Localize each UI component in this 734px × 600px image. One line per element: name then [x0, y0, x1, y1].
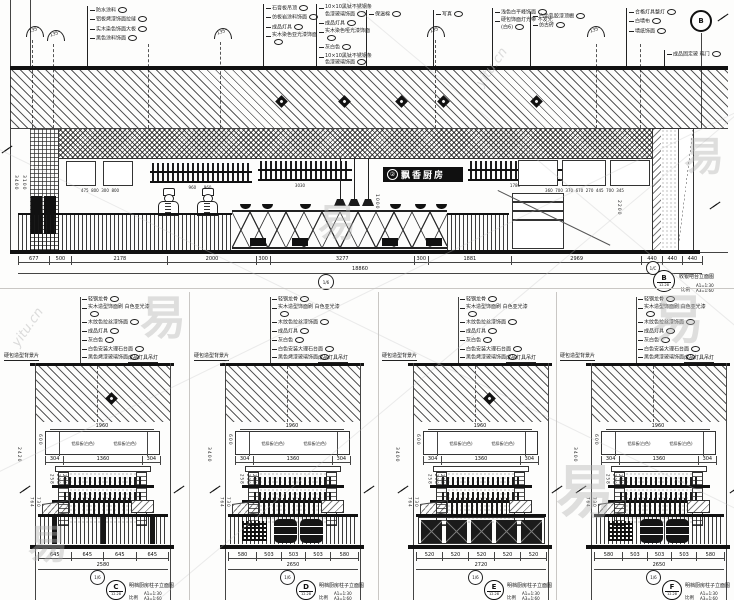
annotation-label: 铝板烤漆饰面拉缝 [90, 16, 147, 23]
wall-hatch [591, 366, 726, 422]
annotation-label: 仿古砖 [533, 22, 585, 29]
dim-600: 600 [37, 434, 42, 446]
annotation-list: 轻钢龙骨实木造型饰面刷 白色亚光漆木纹色拉丝漆饰面成品灯具灰白色白色安装大理石台… [638, 296, 706, 362]
angle-marker: 135° [214, 28, 232, 39]
dimension-value: 580 [331, 552, 359, 561]
cabinet-divider [703, 432, 704, 456]
annotation-label: 灰白色 [82, 337, 150, 344]
wall-edge [591, 363, 592, 600]
overall-dimension: 2650 [228, 562, 358, 570]
annotation-label: 轻钢龙骨 [460, 296, 528, 303]
title-letter: D [303, 584, 309, 591]
annotation-label: 298 [610, 474, 616, 485]
annotation-label: 实木造型饰面刷 白色亚光漆 [82, 305, 150, 318]
title-letter: F [670, 584, 675, 591]
dimension-value: 304 [699, 456, 717, 465]
overall-dimension: 2580 [38, 562, 168, 570]
dimension-string: 6775002178200030032773001881296944044044… [18, 256, 703, 265]
annotation-label: 保温棉 [369, 11, 401, 18]
dimension-value: 304 [602, 456, 620, 465]
reference-bubble: 1/6 [280, 570, 295, 585]
dimension-value: 304 [143, 456, 161, 465]
counter-base-panels [418, 517, 545, 544]
dimension-value: 503 [623, 552, 648, 561]
dim-1960: 1960 [606, 423, 710, 430]
wall-cabinet [103, 161, 133, 186]
barrel-icon [300, 519, 323, 543]
wall-edge [35, 363, 36, 600]
cabinet-row: 铝扣板(白色) 铝扣板(白色) [423, 431, 538, 455]
title-number: 12.28 [109, 591, 123, 597]
dimension-value: 300 [257, 256, 271, 265]
elevation-diamond [105, 392, 118, 405]
dimension-value: 503 [282, 552, 307, 561]
chef-vest [204, 203, 210, 213]
angle-label: 135° [589, 26, 601, 34]
annotation-label: 合格灯具整灯 [629, 9, 676, 16]
dimension-value: 580 [229, 552, 257, 561]
annotation-label: 298 [432, 474, 438, 485]
annotation-label: 成品灯具 [272, 328, 340, 335]
dim-1960: 1960 [50, 423, 154, 430]
door-jamb-hatch [653, 129, 661, 250]
dimension-value: 1360 [620, 456, 698, 465]
annotation-label: 298 [244, 474, 250, 485]
dimension-string: 3041360304 [45, 456, 161, 465]
bottle-shelf [152, 163, 250, 171]
counter-base-barrels [230, 517, 357, 544]
dimension-value: 440 [683, 256, 703, 265]
annotation-label: 258 [604, 474, 610, 485]
shelf-board [150, 181, 252, 183]
lamp-cord [354, 158, 355, 199]
dimension-value: 645 [104, 552, 137, 561]
dimension-value: 304 [236, 456, 254, 465]
panel-separator [0, 288, 734, 289]
break-mark [2, 146, 12, 154]
drawing-title: 明档厨房柱子立面图 [129, 582, 174, 589]
lattice-block [242, 521, 267, 541]
title-letter: B [661, 275, 666, 282]
angle-marker: 135° [47, 30, 65, 41]
dimension-string: 3041360304 [423, 456, 539, 465]
annotation-label: 木纹色拉丝漆饰面 [272, 319, 340, 326]
stored-goods [250, 238, 266, 246]
scale-label: 比例 [319, 595, 328, 600]
overall-dimension: 2720 [416, 562, 546, 570]
goods-cluster [451, 498, 507, 514]
overall-dimension: 18860 [18, 266, 702, 274]
dimension-value: 645 [72, 552, 105, 561]
dimension-string: 3041360304 [235, 456, 351, 465]
center-dash-line [287, 366, 288, 422]
dimension-value: 500 [50, 256, 73, 265]
barrel-icon [666, 519, 689, 543]
break-mark [174, 486, 184, 494]
annotation-label: 白色安装大理石台面 [638, 346, 706, 353]
dimension-value: 440 [663, 256, 683, 265]
bottle-row [442, 477, 520, 485]
angle-marker: 135° [26, 26, 44, 37]
dark-panel [446, 520, 467, 543]
scale-a3: A3=1:60 [334, 596, 352, 600]
base-post [101, 517, 106, 544]
glass-door-leaf [678, 129, 693, 250]
drawing-title-bubble: E 12.28 [484, 580, 504, 600]
dimension-value: 1360 [442, 456, 520, 465]
tray-stack [509, 500, 532, 513]
title-letter: C [113, 584, 118, 591]
break-mark [710, 202, 720, 210]
annotation-label: 258 [238, 474, 244, 485]
scale-label: 比例 [129, 595, 138, 600]
goods-cluster [629, 498, 685, 514]
left-note: 硬包造型背景片 [194, 352, 229, 361]
annotation-label: 实木造型饰面刷 白色亚光漆 [460, 305, 528, 318]
cell-label: 铝扣板(白色) [62, 441, 104, 447]
annotation-label: 实木造型饰面刷 白色亚光漆 [272, 305, 340, 318]
cell-label: 铝扣板(白色) [104, 441, 146, 447]
bottle-row [64, 477, 142, 485]
lamp-cord [368, 158, 369, 199]
left-note: 硬包造型背景片 [4, 352, 39, 361]
annotation-cluster: 防水涂料铝板烤漆饰面拉缝实木染色饰面大板黑色涂料饰面 [87, 6, 147, 66]
column-elevation-panel: 轻钢龙骨实木造型饰面刷 白色亚光漆木纹色拉丝漆饰面成品灯具灰白色白色安装大理石台… [2, 292, 188, 600]
elevation-b: 防水涂料铝板烤漆饰面拉缝实木染色饰面大板黑色涂料饰面 石膏板吊顶仿板岩涂料饰面成… [0, 0, 734, 290]
break-mark [210, 486, 220, 494]
wall-edge [170, 363, 171, 600]
pendant-lamp-icon [334, 199, 346, 206]
scale-block: 比例 A1=1:30 A3=1:60 [129, 591, 162, 600]
stored-goods [292, 238, 308, 246]
floor-line [408, 545, 552, 549]
dimension-value: 503 [672, 552, 697, 561]
side-dims: 730764 [406, 497, 419, 508]
drawing-title: 明档厨房柱子立面图 [685, 582, 730, 589]
door-stone-column [661, 129, 679, 250]
pendant-lamp-icon [362, 199, 374, 206]
annotation-label: 白色安装大理石台面 [460, 346, 528, 353]
cabinet-row: 铝扣板(白色) 铝扣板(白色) [45, 431, 160, 455]
right-note: 成品灯具吊灯 [684, 354, 714, 363]
lamp-cord [340, 158, 341, 199]
dimension-string: 3041360304 [601, 456, 717, 465]
leader-line [270, 297, 271, 363]
drawing-title-bubble: C 12.28 [106, 580, 126, 600]
slat-counter-right [447, 213, 509, 250]
dimension-value: 503 [306, 552, 331, 561]
dimension-value: 580 [595, 552, 623, 561]
column-elevation-panel: 轻钢龙骨实木造型饰面刷 白色亚光漆木纹色拉丝漆饰面成品灯具灰白色白色安装大理石台… [380, 292, 566, 600]
bottle-row [254, 477, 332, 485]
annotation-label: 木纹色拉丝漆饰面 [460, 319, 528, 326]
dimension-value: 3277 [271, 256, 415, 265]
sign-logo-icon: ② [387, 169, 398, 180]
shelf-dims: 258298258 [238, 474, 257, 485]
drawing-title-bubble: F 12.28 [662, 580, 682, 600]
dimension-value: 520 [469, 552, 495, 561]
annotation-label: 764 [584, 497, 590, 508]
base-post [150, 517, 155, 544]
shelf-board [52, 485, 154, 488]
drawing-title: 明档厨房柱子立面图 [319, 582, 364, 589]
annotation-list: 轻钢龙骨实木造型饰面刷 白色亚光漆木纹色拉丝漆饰面成品灯具灰白色白色安装大理石台… [82, 296, 150, 362]
annotation-label: 成品灯具 [82, 328, 150, 335]
cell-label: 铝扣板(白色) [440, 441, 482, 447]
annotation-label: 白色安装大理石台面 [82, 346, 150, 353]
shelf-board [608, 485, 710, 488]
cabinet-divider [249, 432, 250, 456]
break-mark [398, 486, 408, 494]
wall-edge [413, 363, 414, 600]
counter-base-barrels [596, 517, 723, 544]
dim-600: 600 [227, 434, 232, 446]
scale-label: 比例 [507, 595, 516, 600]
annotation-label: 258 [61, 474, 67, 485]
wall-edge [225, 363, 226, 600]
shelf-dims: 258298258 [48, 474, 67, 485]
height-dim: 3400 [572, 447, 577, 462]
title-number: 12.28 [665, 591, 679, 597]
dimension-value: 520 [495, 552, 521, 561]
left-note: 硬包造型背景片 [560, 352, 595, 361]
annotation-label: 成品固定玻 璃门 [667, 51, 721, 58]
dimension-value: 300 [415, 256, 429, 265]
break-mark [730, 486, 734, 494]
side-dims: 730764 [28, 497, 41, 508]
wall-edge [726, 363, 727, 600]
reference-bubble: 1/6 [646, 570, 661, 585]
dark-panel [471, 520, 492, 543]
angle-marker: 135° [587, 26, 605, 37]
bottle-shelf [260, 161, 350, 169]
annotation-cluster: 写真 [433, 10, 463, 66]
ceiling-line [10, 66, 728, 70]
grid-letter: B [698, 18, 703, 25]
barrel-icon [640, 519, 663, 543]
dimension-value: 304 [333, 456, 351, 465]
break-mark [718, 14, 728, 22]
shelf-board [430, 485, 532, 488]
annotation-label: 黑色涂料饰面 [90, 35, 147, 42]
bottle-shelf [152, 173, 250, 181]
shelf-dim: 3030 [270, 183, 330, 188]
title-number: 12.28 [299, 591, 313, 597]
angle-marker: 135° [427, 26, 445, 37]
annotation-label: 木纹色拉丝漆饰面 [638, 319, 706, 326]
wall-edge [548, 363, 549, 600]
cabinet-divider [147, 432, 148, 456]
floor-line [220, 545, 364, 549]
scale-a3: A3=1:60 [144, 596, 162, 600]
scale-a3: A3=1:60 [522, 596, 540, 600]
annotation-label: 258 [426, 474, 432, 485]
cabinet-divider [337, 432, 338, 456]
dimension-value: 304 [424, 456, 442, 465]
annotation-label: 258 [251, 474, 257, 485]
panel-separator [378, 292, 379, 600]
dimension-value: 645 [137, 552, 170, 561]
scale-block: 比例 A1=1:30 A3=1:60 [685, 591, 718, 600]
column-elevation-panel: 轻钢龙骨实木造型饰面刷 白色亚光漆木纹色拉丝漆饰面成品灯具灰白色白色安装大理石台… [192, 292, 378, 600]
annotation-label: 轻钢龙骨 [638, 296, 706, 303]
drawing-title: 明档厨房柱子立面图 [507, 582, 552, 589]
annotation-label: 白色安装大理石台面 [272, 346, 340, 353]
drawing-title: 收银吧台立面图 [679, 273, 714, 280]
tray-stack [131, 500, 154, 513]
height-dim: 2420 [16, 447, 21, 462]
dimension-string: 580503503503580 [228, 552, 359, 561]
chef-figure [196, 188, 218, 214]
right-note: 成品灯具吊灯 [506, 354, 536, 363]
dimension-value: 1360 [64, 456, 142, 465]
height-dim: 3400 [394, 447, 399, 462]
pendant-lamp-icon [348, 199, 360, 206]
annotation-label: 764 [28, 497, 34, 508]
right-note: 成品灯具吊灯 [318, 354, 348, 363]
cabinet-row: 铝扣板(白色) 铝扣板(白色) [601, 431, 716, 455]
kitchen-signboard: ② 飘香厨房 [383, 167, 463, 182]
annotation-cluster: 保温棉 [366, 10, 401, 66]
shelf-board [242, 485, 344, 488]
fridge-body [512, 220, 564, 249]
slat-counter-left [18, 213, 232, 250]
annotation-label: 灰白色 [272, 337, 340, 344]
floor-line-ext [700, 252, 728, 253]
barrel-icon [274, 519, 297, 543]
left-note: 硬包造型背景片 [382, 352, 417, 361]
dark-panel [521, 520, 542, 543]
shelf-dims: 258298258 [426, 474, 445, 485]
overall-dimension: 2650 [594, 562, 724, 570]
side-dims: 730764 [584, 497, 597, 508]
goods-cluster [73, 498, 129, 514]
title-letter: E [492, 584, 497, 591]
annotation-label: 轻钢龙骨 [82, 296, 150, 303]
cell-label: 铝扣板(白色) [482, 441, 524, 447]
grid-bubble-b: B [690, 10, 712, 32]
wall-cabinet [610, 160, 650, 186]
annotation-cluster: 白色乳胶漆顶棚仿古砖 [530, 12, 585, 66]
dimension-value: 520 [521, 552, 547, 561]
shelf-board [258, 179, 352, 181]
tray-stack [687, 500, 710, 513]
annotation-cluster: 成品固定玻 璃门 [664, 50, 721, 66]
break-mark [20, 486, 30, 494]
reference-bubble: 1/6 [468, 570, 483, 585]
annotation-label: 730 [412, 497, 418, 508]
wall-cabinet [518, 160, 558, 186]
dimension-value: 304 [521, 456, 539, 465]
dark-panel [496, 520, 517, 543]
annotation-label: 墙纸饰面 [629, 28, 676, 35]
wall-cabinet [66, 161, 96, 186]
stored-goods [426, 238, 442, 246]
dim-600: 600 [415, 434, 420, 446]
annotation-cluster: 石膏板吊顶仿板岩涂料饰面成品灯具实木染色亚光漆饰面 [263, 4, 324, 66]
dimension-value: 580 [697, 552, 725, 561]
dimension-value: 1360 [254, 456, 332, 465]
annotation-label: 258 [617, 474, 623, 485]
annotation-label: 730 [590, 497, 596, 508]
center-dash-line [97, 366, 98, 422]
annotation-label: 成品灯具 [638, 328, 706, 335]
wall-hatch [413, 366, 548, 422]
cad-sheet: 防水涂料铝板烤漆饰面拉缝实木染色饰面大板黑色涂料饰面 石膏板吊顶仿板岩涂料饰面成… [0, 0, 734, 600]
annotation-label: 白色乳胶漆顶棚 [533, 13, 585, 20]
cell-label: 铝扣板(白色) [660, 441, 702, 447]
base-post [52, 517, 57, 544]
scale-label: 比例 [685, 595, 694, 600]
dimension-value: 503 [257, 552, 282, 561]
leader-line [458, 297, 459, 363]
dim-600: 600 [593, 434, 598, 446]
dimension-value: 304 [46, 456, 64, 465]
leader-line [636, 297, 637, 363]
cabinet-divider [437, 432, 438, 456]
stored-goods [382, 238, 398, 246]
annotation-label: 灰白色 [460, 337, 528, 344]
ceiling-hatch-band [10, 70, 728, 128]
cabinet-divider [615, 432, 616, 456]
chef-vest [165, 203, 171, 213]
annotation-label: 防水涂料 [90, 7, 147, 14]
cabinet-row: 铝扣板(白色) 铝扣板(白色) [235, 431, 350, 455]
right-note: 成品灯具吊灯 [128, 354, 158, 363]
center-dash-line [475, 366, 476, 422]
cabinet-dims: 475 800 300 800 [62, 188, 138, 193]
wall-edge [360, 363, 361, 600]
floor-line [586, 545, 730, 549]
column-elevation-panel: 轻钢龙骨实木造型饰面刷 白色亚光漆木纹色拉丝漆饰面成品灯具灰白色白色安装大理石台… [558, 292, 734, 600]
dimension-value: 503 [648, 552, 673, 561]
sign-text: 飘香厨房 [401, 168, 445, 181]
annotation-label: 成品灯具 [460, 328, 528, 335]
counter-base-slats [40, 517, 167, 544]
height-dim: 3400 [13, 175, 18, 190]
dimension-value: 1881 [429, 256, 512, 265]
dimension-value: 520 [443, 552, 469, 561]
cabinet-divider [59, 432, 60, 456]
title-number: 12.28 [657, 282, 671, 288]
lattice-block [608, 521, 633, 541]
cell-label: 铝扣板(白色) [618, 441, 660, 447]
lattice-ceiling [58, 129, 652, 159]
angle-label: 135° [49, 30, 61, 38]
dark-panel [421, 520, 442, 543]
height-dim: 3100 [21, 175, 26, 190]
scale-block: 比例 A1=1:30 A3=1:60 [507, 591, 540, 600]
annotation-label: 轻钢龙骨 [272, 296, 340, 303]
annotation-list: 轻钢龙骨实木造型饰面刷 白色亚光漆木纹色拉丝漆饰面成品灯具灰白色白色安装大理石台… [272, 296, 340, 362]
dimension-string: 520520520520520 [416, 552, 547, 561]
tray-stack [321, 500, 344, 513]
break-mark [364, 486, 374, 494]
dimension-value: 645 [39, 552, 72, 561]
annotation-label: 258 [48, 474, 54, 485]
height-dim: 3400 [206, 447, 211, 462]
dimension-value: 2000 [168, 256, 256, 265]
panel-separator [189, 292, 190, 600]
scale-a3: A3=1:60 [700, 596, 718, 600]
reference-bubble: 1/6 [90, 570, 105, 585]
dim-1960: 1960 [240, 423, 344, 430]
wall-hatch [225, 366, 360, 422]
annotation-label: 298 [54, 474, 60, 485]
height-dim: 2200 [616, 200, 621, 215]
leader-line [80, 297, 81, 363]
break-mark [576, 486, 586, 494]
